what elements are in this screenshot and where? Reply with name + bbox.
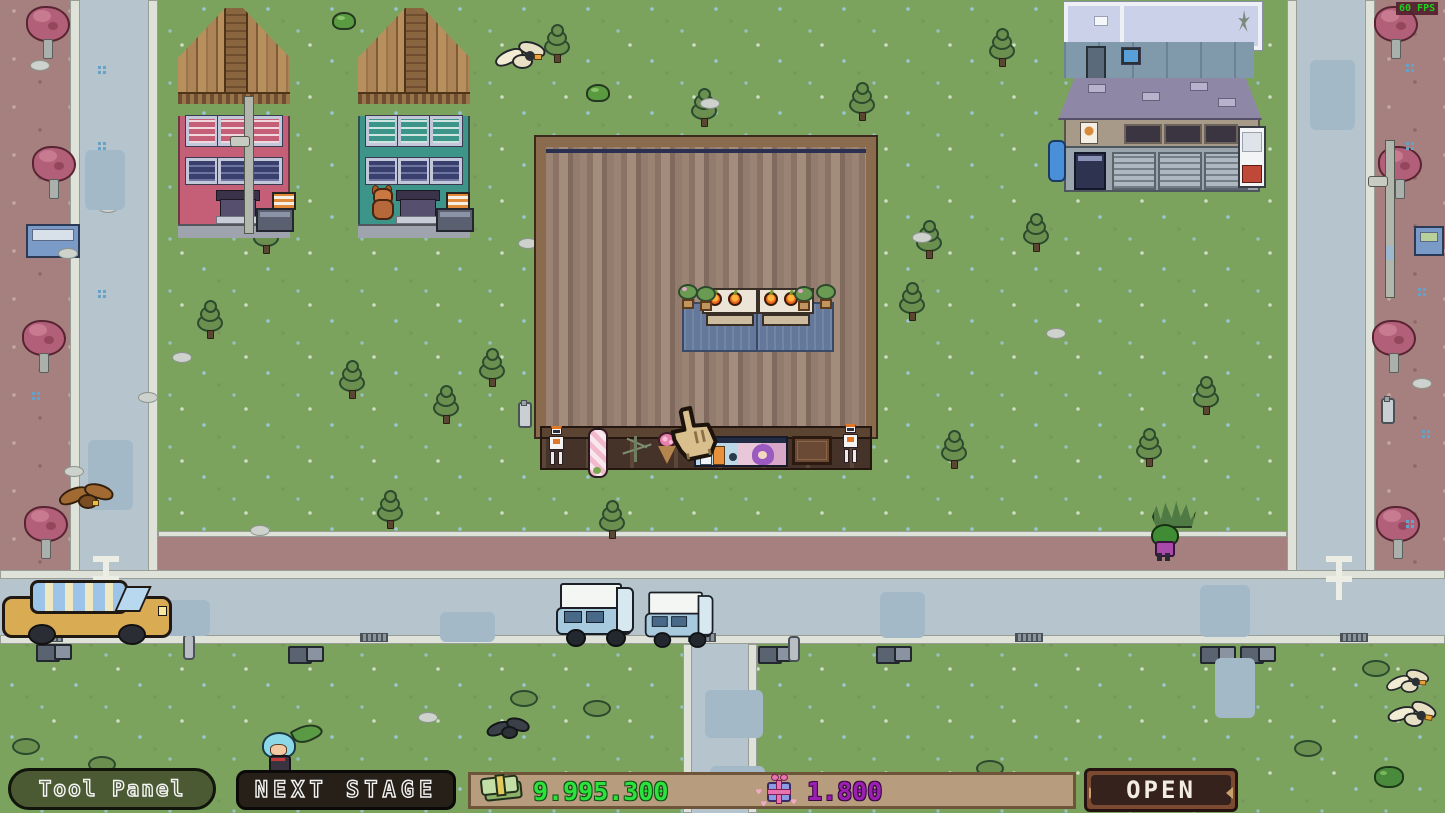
field-tree — [1192, 376, 1220, 414]
window — [1204, 124, 1238, 144]
delivery-van — [556, 583, 636, 643]
roof-vent — [1142, 92, 1160, 101]
street-bench — [1414, 226, 1444, 256]
field-tree — [988, 28, 1016, 66]
money-bills-icon — [479, 772, 526, 808]
heart-icon: ♥ — [791, 798, 796, 808]
store-upper-door — [1086, 46, 1106, 80]
trash-bins — [288, 646, 312, 664]
window — [398, 116, 430, 146]
house-roof — [178, 8, 290, 104]
window — [366, 158, 398, 184]
bush — [510, 690, 538, 707]
roller-shutter — [1158, 152, 1202, 190]
road-patch — [705, 690, 763, 738]
storm-drain — [360, 633, 388, 642]
apple-item — [764, 292, 778, 306]
window — [430, 158, 462, 184]
pink-tree — [24, 506, 70, 564]
gift-icon: ♥♥♥ — [763, 772, 797, 808]
wheel — [28, 624, 56, 645]
trash-bins — [758, 646, 782, 664]
window — [430, 116, 462, 146]
security-camera — [1368, 176, 1388, 187]
field-tree — [196, 300, 224, 338]
store-ground-floor — [1064, 146, 1260, 192]
game-viewport: Tool Panel NEXT STAGE 9.995.300 ♥♥♥ 1.80… — [0, 0, 1445, 813]
bush — [583, 700, 611, 717]
pink-tree — [26, 6, 72, 64]
wheel — [689, 632, 707, 648]
field-tree — [898, 282, 926, 320]
open-shop-button[interactable]: OPEN — [1084, 768, 1238, 812]
stone — [138, 392, 158, 403]
bottle-prop — [518, 402, 532, 428]
curb — [0, 570, 1445, 579]
tile-dots — [32, 392, 35, 395]
store-second-floor — [1064, 42, 1254, 78]
flying-duck — [494, 42, 546, 72]
window — [1164, 124, 1202, 144]
flying-hawk — [58, 482, 114, 514]
green-critter — [332, 12, 356, 30]
apple-item — [728, 292, 742, 306]
wheel — [566, 629, 586, 647]
stone — [58, 248, 78, 259]
arrow-decor-icon — [1226, 787, 1233, 799]
bollard — [788, 636, 800, 662]
next-stage-label: NEXT STAGE — [255, 778, 437, 803]
storm-drain — [1015, 633, 1043, 642]
plant-silhouette — [1238, 10, 1250, 32]
window — [366, 116, 398, 146]
road-patch — [1200, 585, 1250, 637]
window — [186, 116, 218, 146]
hearts-counter: 1.800 — [807, 777, 882, 806]
blue-prop — [1048, 140, 1066, 182]
stone — [250, 525, 270, 536]
stone — [518, 238, 538, 249]
pink-tree — [1372, 320, 1418, 378]
pink-tree — [32, 146, 78, 204]
curb — [158, 531, 1287, 537]
next-stage-button[interactable]: NEXT STAGE — [236, 770, 456, 810]
tile-dots — [1422, 430, 1425, 433]
field-tree — [598, 500, 626, 538]
pink-tree — [1376, 506, 1422, 564]
open-label: OPEN — [1126, 776, 1196, 804]
roof-vent — [1088, 84, 1106, 93]
road-patch — [1215, 658, 1255, 718]
crow — [486, 718, 528, 740]
pole-band — [1386, 246, 1393, 260]
potted-plant — [696, 286, 716, 314]
field-tree — [848, 82, 876, 120]
wheel — [654, 632, 672, 648]
road-marking — [93, 556, 119, 562]
convenience-store — [1058, 0, 1262, 188]
mannequin-robot — [546, 426, 566, 468]
green-critter — [586, 84, 610, 102]
road-patch — [85, 150, 125, 210]
stone — [912, 232, 932, 243]
window — [186, 158, 218, 184]
bollard — [183, 634, 195, 660]
roof-vent — [1190, 82, 1208, 91]
house-entrance — [396, 190, 438, 224]
mannequin-robot — [840, 424, 860, 466]
potted-plant — [794, 286, 814, 314]
road-marking — [1326, 556, 1352, 562]
popsicle-sign — [588, 428, 608, 478]
stone — [172, 352, 192, 363]
road-patch — [880, 592, 925, 638]
field-tree — [1022, 213, 1050, 251]
poster — [1080, 122, 1098, 144]
trash-bins — [36, 644, 60, 662]
trash-bins — [876, 646, 900, 664]
curb — [148, 0, 158, 573]
ac-unit — [436, 208, 474, 232]
money-counter: 9.995.300 — [533, 777, 668, 806]
field-tree — [478, 348, 506, 386]
curb — [1287, 0, 1297, 573]
road-patch — [1310, 60, 1355, 130]
heart-icon: ♥ — [756, 788, 761, 798]
field-tree — [543, 24, 571, 62]
ac-unit — [256, 208, 294, 232]
stone — [418, 712, 438, 723]
resource-bar: 9.995.300 ♥♥♥ 1.800 — [468, 772, 1076, 809]
vending-machine — [1238, 126, 1266, 188]
pink-tree — [22, 320, 68, 378]
tile-dots — [98, 142, 101, 145]
tile-dots — [98, 66, 101, 69]
potted-plant — [816, 284, 836, 312]
security-camera — [230, 136, 250, 147]
bush — [12, 738, 40, 755]
stone — [1046, 328, 1066, 339]
field-tree — [432, 385, 460, 423]
window — [1122, 48, 1140, 64]
house-roof — [358, 8, 470, 104]
roller-shutter — [1112, 152, 1156, 190]
tile-dots — [1418, 288, 1421, 291]
wheel — [606, 629, 626, 647]
potted-plant — [678, 284, 698, 312]
stone — [1412, 378, 1432, 389]
bush — [1294, 740, 1322, 757]
tile-dots — [98, 290, 101, 293]
curb — [1365, 0, 1375, 573]
bench-seat — [1420, 232, 1438, 242]
white-bird — [1385, 670, 1422, 692]
tile-dots — [1406, 64, 1409, 67]
tile-dots — [1406, 142, 1409, 145]
window — [250, 116, 282, 146]
delivery-van — [645, 592, 715, 645]
road-marking — [1326, 576, 1352, 582]
fps-counter: 60 FPS — [1396, 2, 1438, 15]
stone — [64, 466, 84, 477]
field-tree — [1135, 428, 1163, 466]
table-top — [32, 229, 74, 241]
road-patch — [440, 612, 495, 642]
headlight — [158, 606, 167, 616]
utility-pole — [1385, 140, 1395, 298]
taxi-car — [2, 580, 170, 642]
tile-dots — [1406, 520, 1409, 523]
window — [398, 158, 430, 184]
field-tree — [376, 490, 404, 528]
branch-decor — [616, 432, 658, 466]
tool-panel-button[interactable]: Tool Panel — [8, 768, 216, 810]
storm-drain — [1340, 633, 1368, 642]
field-tree — [338, 360, 366, 398]
white-bird — [1386, 698, 1435, 731]
npc-green-hair — [1150, 524, 1178, 562]
street-lamp-pole — [244, 96, 254, 234]
store-entrance — [1074, 152, 1106, 190]
field-tree — [940, 430, 968, 468]
shop-doormat[interactable] — [792, 436, 832, 465]
heart-icon: ♥ — [761, 800, 766, 810]
stone — [700, 98, 720, 109]
frog-critter — [1374, 766, 1404, 788]
npc-dog — [370, 188, 392, 220]
path-field-bottom — [158, 537, 1287, 570]
store-sign-band — [1064, 120, 1260, 146]
wheel — [118, 624, 146, 645]
roof-vent — [1218, 98, 1236, 107]
window — [250, 158, 282, 184]
tool-panel-label: Tool Panel — [39, 777, 185, 801]
window — [1124, 124, 1162, 144]
bollard — [1381, 398, 1395, 424]
